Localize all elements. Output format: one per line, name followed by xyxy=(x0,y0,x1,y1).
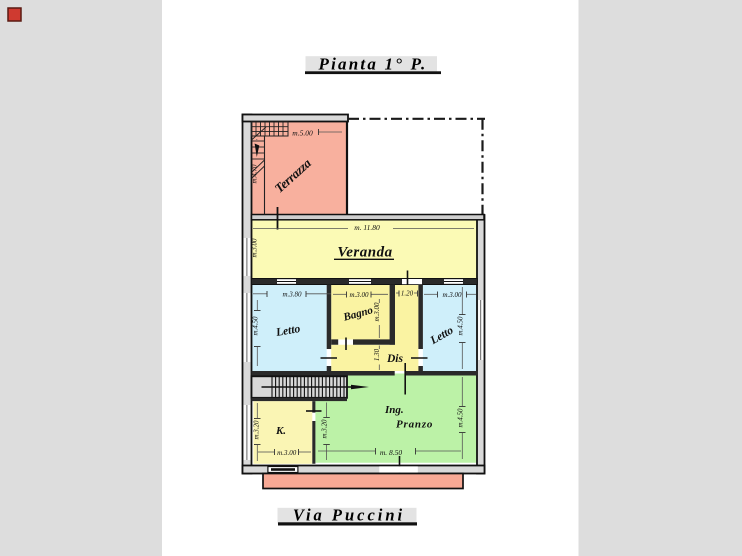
svg-text:1.20: 1.20 xyxy=(401,290,414,298)
svg-text:Pianta 1° P.: Pianta 1° P. xyxy=(318,55,428,74)
svg-text:m. 8.50: m. 8.50 xyxy=(380,448,403,457)
svg-text:1.30: 1.30 xyxy=(373,348,381,361)
svg-text:m.5.00: m.5.00 xyxy=(292,129,313,138)
svg-text:m.3.00: m.3.00 xyxy=(251,238,259,258)
svg-text:Via Puccini: Via Puccini xyxy=(293,506,405,525)
svg-text:m.3.80: m.3.80 xyxy=(282,291,302,299)
svg-text:m. 11.80: m. 11.80 xyxy=(354,223,380,232)
svg-text:m.3.00: m.3.00 xyxy=(277,449,297,457)
svg-text:K.: K. xyxy=(275,425,286,437)
svg-text:m.4.70: m.4.70 xyxy=(251,164,259,184)
svg-text:m.3.20: m.3.20 xyxy=(321,419,329,439)
svg-text:Ing.: Ing. xyxy=(384,404,404,416)
svg-text:m.3.00: m.3.00 xyxy=(442,291,462,299)
svg-text:m.3.00: m.3.00 xyxy=(349,291,369,299)
svg-text:Veranda: Veranda xyxy=(337,245,392,261)
svg-text:m.3.20: m.3.20 xyxy=(253,420,261,440)
svg-text:m.4.50: m.4.50 xyxy=(457,408,465,428)
svg-text:m.4.50: m.4.50 xyxy=(457,316,465,336)
svg-text:m.3.00: m.3.00 xyxy=(373,302,381,322)
svg-text:m.4.50: m.4.50 xyxy=(252,316,260,336)
svg-text:Pranzo: Pranzo xyxy=(396,419,433,431)
svg-text:Dis: Dis xyxy=(386,353,404,365)
